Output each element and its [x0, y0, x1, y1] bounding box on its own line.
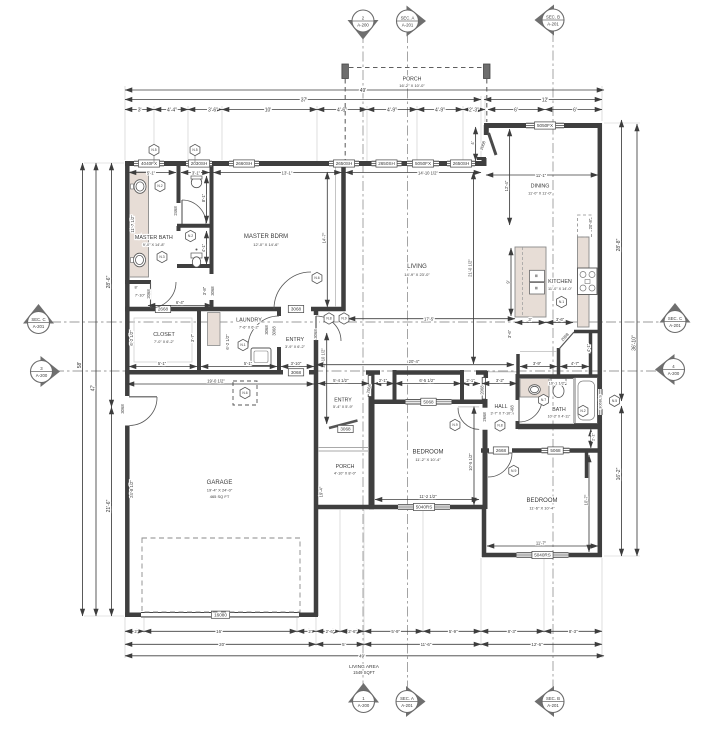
svg-text:16': 16' [216, 629, 222, 634]
svg-text:6'-2 1/2": 6'-2 1/2" [129, 330, 134, 346]
svg-text:2668: 2668 [496, 448, 507, 453]
svg-text:4'-1": 4'-1" [201, 243, 206, 252]
svg-text:2'-3": 2'-3" [469, 107, 479, 113]
svg-text:4': 4' [470, 141, 475, 144]
svg-text:3'-2": 3'-2" [496, 378, 505, 383]
svg-text:KITCHEN: KITCHEN [548, 279, 572, 285]
svg-text:5'-4 1/2": 5'-4 1/2" [333, 378, 349, 383]
svg-text:2'-1": 2'-1" [466, 378, 475, 383]
svg-text:A-201: A-201 [547, 703, 559, 708]
svg-text:5050FX: 5050FX [415, 161, 431, 166]
svg-text:A-201: A-201 [33, 324, 45, 329]
svg-text:SEC. C: SEC. C [668, 316, 682, 321]
svg-text:3068: 3068 [313, 329, 318, 339]
svg-text:36'-10": 36'-10" [632, 335, 638, 351]
svg-text:6': 6' [573, 107, 577, 113]
svg-text:13'-1": 13'-1" [282, 170, 293, 175]
svg-text:3'-6": 3'-6" [507, 329, 512, 338]
svg-text:9’-0" X 14’-8": 9’-0" X 14’-8" [143, 243, 166, 247]
svg-text:5068: 5068 [423, 399, 434, 404]
svg-text:11'-2 1/2": 11'-2 1/2" [419, 494, 437, 499]
svg-text:3’-7" X 7’-10": 3’-7" X 7’-10" [491, 412, 513, 416]
svg-text:MASTER BDRM: MASTER BDRM [244, 234, 288, 240]
svg-text:4'-7": 4'-7" [571, 361, 580, 366]
svg-text:12': 12' [542, 97, 549, 103]
svg-text:N.9: N.9 [341, 317, 346, 321]
svg-text:10’-3" X 4’-11": 10’-3" X 4’-11" [548, 415, 571, 419]
svg-text:N.1: N.1 [240, 343, 245, 347]
svg-text:4040FX: 4040FX [141, 161, 157, 166]
svg-text:3068: 3068 [264, 325, 269, 335]
svg-text:2068: 2068 [146, 289, 151, 299]
svg-text:3068: 3068 [291, 307, 302, 312]
svg-text:A-200: A-200 [358, 703, 370, 708]
svg-text:2668: 2668 [158, 307, 169, 312]
svg-text:ENTRY: ENTRY [334, 398, 352, 404]
svg-text:N.8: N.8 [326, 317, 331, 321]
svg-text:N.2: N.2 [188, 234, 193, 238]
svg-text:5'-1": 5'-1" [244, 361, 253, 366]
svg-text:14’-9" X 23’-0": 14’-9" X 23’-0" [404, 272, 430, 277]
svg-text:5050FX: 5050FX [537, 123, 553, 128]
svg-text:2030SH: 2030SH [191, 161, 208, 166]
svg-text:11'-7 1/2": 11'-7 1/2" [130, 215, 135, 233]
svg-text:7’-6" X 6’-2": 7’-6" X 6’-2" [239, 326, 260, 330]
svg-text:14'-10 1/2": 14'-10 1/2" [418, 170, 438, 175]
svg-text:4’-10" X 8’-0": 4’-10" X 8’-0" [334, 472, 357, 476]
svg-text:A-201: A-201 [669, 323, 681, 328]
svg-text:8'-1": 8'-1" [201, 193, 206, 202]
svg-text:N.2: N.2 [157, 184, 162, 188]
svg-text:11’-2" X 10’-4": 11’-2" X 10’-4" [415, 457, 441, 462]
svg-text:16'-2": 16'-2" [616, 467, 622, 480]
svg-text:21'-6": 21'-6" [106, 499, 112, 512]
svg-text:12’-0" X 14’-6": 12’-0" X 14’-6" [253, 242, 279, 247]
svg-text:2'-6": 2'-6" [326, 629, 335, 634]
svg-text:5040RS: 5040RS [534, 553, 551, 558]
svg-text:49': 49' [360, 88, 367, 94]
svg-text:2': 2' [308, 629, 311, 634]
svg-text:11’-0" X 14’-0": 11’-0" X 14’-0" [548, 287, 573, 291]
svg-text:HALL: HALL [495, 404, 508, 410]
svg-text:58': 58' [77, 362, 83, 369]
svg-text:N.7: N.7 [541, 398, 546, 402]
svg-text:20'-8": 20'-8" [588, 218, 593, 229]
svg-text:10': 10' [265, 107, 272, 113]
svg-text:BEDROOM: BEDROOM [412, 450, 443, 456]
svg-text:47': 47' [91, 385, 97, 392]
svg-text:N.6: N.6 [314, 276, 319, 280]
svg-text:N.2: N.2 [580, 409, 585, 413]
svg-text:N.5: N.5 [612, 399, 617, 403]
svg-text:N.3: N.3 [159, 255, 164, 259]
svg-text:11’-0" X 11’-0": 11’-0" X 11’-0" [528, 192, 552, 196]
svg-text:N.1: N.1 [559, 300, 564, 304]
svg-text:2'-1": 2'-1" [591, 432, 596, 441]
svg-text:BEDROOM: BEDROOM [526, 498, 557, 504]
svg-text:DINING: DINING [531, 184, 550, 190]
svg-text:5'-9": 5'-9" [391, 629, 400, 634]
svg-text:19'-0 1/2": 19'-0 1/2" [207, 379, 225, 384]
svg-text:A-200: A-200 [36, 373, 48, 378]
svg-text:4'-9": 4'-9" [387, 107, 397, 113]
svg-text:9': 9' [505, 280, 510, 283]
svg-text:16080: 16080 [214, 612, 227, 617]
svg-text:3’-9" X 6’-2": 3’-9" X 6’-2" [285, 345, 306, 349]
svg-text:SEC. C: SEC. C [31, 317, 45, 322]
svg-text:LIVING: LIVING [407, 264, 427, 270]
svg-text:3': 3' [138, 107, 142, 113]
svg-text:BATH: BATH [552, 407, 566, 413]
svg-text:10'-1 1/2": 10'-1 1/2" [549, 381, 566, 386]
svg-text:PORCH: PORCH [403, 77, 422, 83]
svg-text:SEC. A: SEC. A [400, 696, 414, 701]
svg-text:2668: 2668 [482, 412, 487, 422]
svg-text:2': 2' [134, 629, 137, 634]
svg-text:3’-8": 3’-8" [202, 286, 207, 295]
svg-text:24'-8 1/2": 24'-8 1/2" [129, 480, 134, 498]
svg-text:28'-6": 28'-6" [106, 275, 112, 288]
svg-text:5'-1": 5'-1" [158, 361, 167, 366]
svg-text:6'-4": 6'-4" [176, 300, 185, 305]
svg-text:2650SH: 2650SH [378, 161, 395, 166]
svg-text:465 SQ FT: 465 SQ FT [210, 494, 230, 499]
svg-text:49': 49' [359, 654, 365, 659]
svg-text:5'-9": 5'-9" [449, 629, 458, 634]
svg-text:3'-6": 3'-6" [208, 107, 218, 113]
svg-text:20'-4": 20'-4" [409, 359, 420, 364]
svg-text:12'-4": 12'-4" [504, 180, 509, 191]
svg-text:3'-7": 3'-7" [190, 333, 195, 342]
svg-text:4'-1": 4'-1" [586, 343, 591, 352]
svg-text:N.9: N.9 [452, 423, 457, 427]
svg-text:GARAGE: GARAGE [207, 480, 233, 486]
svg-text:20': 20' [219, 642, 225, 647]
svg-text:SEC. B: SEC. B [546, 696, 560, 701]
svg-text:7'-10": 7'-10" [135, 293, 146, 298]
svg-text:5'-1": 5'-1" [147, 170, 156, 175]
svg-text:3068: 3068 [210, 286, 215, 296]
svg-text:MASTER BATH: MASTER BATH [135, 235, 173, 241]
svg-text:3'-6": 3'-6" [556, 317, 565, 322]
svg-text:SEC. A: SEC. A [401, 15, 415, 20]
svg-text:N.5: N.5 [192, 148, 197, 152]
svg-text:14'-7": 14'-7" [322, 232, 327, 243]
svg-text:3'-1": 3'-1" [192, 170, 201, 175]
svg-text:N.6: N.6 [242, 391, 247, 395]
svg-text:2650SH: 2650SH [336, 161, 353, 166]
svg-text:19’-4" X 24’-0": 19’-4" X 24’-0" [207, 488, 233, 493]
svg-text:5068: 5068 [550, 448, 561, 453]
svg-text:7’-0" X 6’-2": 7’-0" X 6’-2" [154, 340, 175, 344]
svg-text:6'-2 1/2": 6'-2 1/2" [225, 334, 230, 350]
svg-text:21'-0 1/2": 21'-0 1/2" [468, 259, 473, 277]
svg-text:19'-4": 19'-4" [319, 486, 324, 497]
svg-text:10'-7": 10'-7" [583, 494, 588, 505]
svg-text:1549 SQFT: 1549 SQFT [353, 670, 375, 675]
svg-text:LAUNDRY: LAUNDRY [236, 318, 262, 324]
svg-text:3068: 3068 [272, 326, 277, 336]
svg-text:2068: 2068 [480, 385, 485, 395]
svg-text:2650SH: 2650SH [453, 161, 470, 166]
svg-text:11'-6": 11'-6" [421, 642, 432, 647]
svg-text:3'-10": 3'-10" [291, 361, 302, 366]
svg-text:5040RS: 5040RS [416, 505, 433, 510]
svg-text:17'-5': 17'-5' [424, 317, 434, 322]
svg-text:16’-2" X 10’-0": 16’-2" X 10’-0" [399, 83, 425, 88]
svg-text:3068LS: 3068LS [598, 395, 603, 409]
svg-text:A-201: A-201 [402, 22, 414, 27]
svg-text:SEC. B: SEC. B [546, 14, 560, 19]
svg-text:10'-5 1/2": 10'-5 1/2" [468, 453, 473, 471]
svg-text:3'-9": 3'-9" [533, 361, 542, 366]
svg-text:3068: 3068 [291, 370, 302, 375]
svg-text:N.5: N.5 [151, 148, 156, 152]
svg-text:N.9: N.9 [511, 469, 516, 473]
svg-text:3068: 3068 [120, 404, 125, 414]
svg-text:4'-9": 4'-9" [435, 107, 445, 113]
svg-text:CLOSET: CLOSET [153, 332, 175, 338]
svg-text:ENTRY: ENTRY [286, 337, 305, 343]
svg-text:4'-4": 4'-4" [167, 107, 177, 113]
svg-text:2'-6": 2'-6" [348, 629, 357, 634]
svg-text:37': 37' [301, 97, 308, 103]
svg-text:PORCH: PORCH [336, 464, 355, 470]
svg-text:11’-6" X 10’-4": 11’-6" X 10’-4" [529, 506, 555, 511]
svg-text:28'-8": 28'-8" [616, 238, 622, 251]
svg-text:2660SH: 2660SH [236, 161, 253, 166]
svg-text:8': 8' [135, 285, 138, 290]
svg-text:11'-7": 11'-7" [536, 541, 547, 546]
svg-text:6'-5 1/2": 6'-5 1/2" [419, 378, 435, 383]
svg-text:A-201: A-201 [547, 21, 559, 26]
svg-text:11'-1": 11'-1" [536, 173, 547, 178]
svg-text:2'-1": 2'-1" [379, 378, 388, 383]
svg-text:3': 3' [528, 317, 531, 322]
svg-text:N.8: N.8 [497, 424, 502, 428]
svg-text:6': 6' [514, 107, 518, 113]
svg-text:5': 5' [342, 642, 345, 647]
svg-text:8'-3": 8'-3" [569, 629, 578, 634]
svg-text:3068: 3068 [340, 427, 351, 432]
svg-text:A-200: A-200 [668, 371, 680, 376]
svg-text:2468: 2468 [173, 206, 178, 216]
svg-text:12'-6": 12'-6" [531, 642, 543, 647]
svg-text:A-200: A-200 [357, 22, 369, 27]
svg-text:5’-4" X 5’-9": 5’-4" X 5’-9" [333, 405, 354, 409]
svg-text:A-201: A-201 [401, 703, 413, 708]
svg-text:8'-3": 8'-3" [508, 629, 517, 634]
